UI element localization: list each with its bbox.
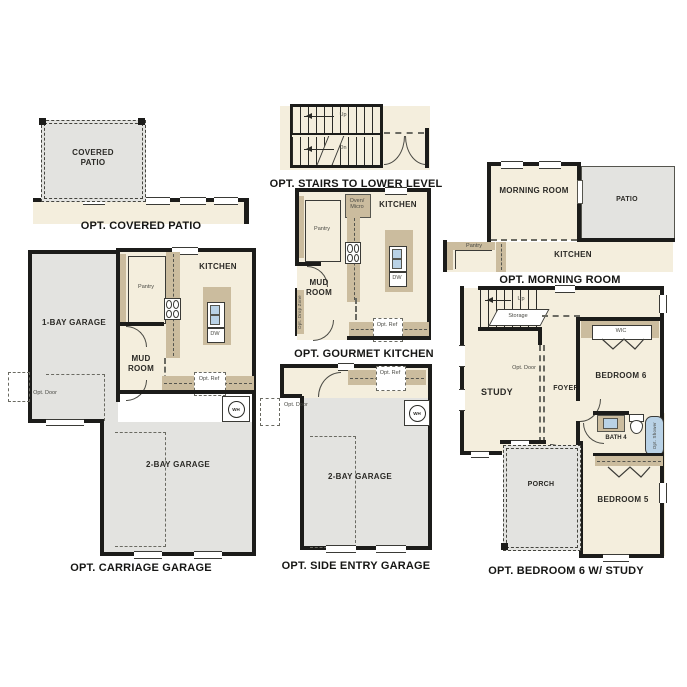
wall: [428, 364, 432, 550]
sink-basin: [210, 315, 220, 325]
bathtub-icon: Opt. Shower: [645, 416, 664, 456]
closet-double-door-icon: [601, 339, 645, 350]
wall: [118, 390, 256, 394]
garage-door-opening: [134, 551, 162, 559]
room-label-bedroom6: BEDROOM 6: [583, 371, 659, 381]
stair-flight-up: [292, 106, 380, 133]
room-label-kitchen: KITCHEN: [531, 250, 615, 260]
caption-carriage-garage: OPT. CARRIAGE GARAGE: [22, 562, 260, 574]
sink-icon: [389, 246, 407, 272]
room-label-kitchen: KITCHEN: [182, 262, 254, 272]
window: [603, 554, 629, 562]
patio-post: [138, 118, 145, 125]
opt-ref-label: Opt. Ref: [194, 376, 224, 382]
wall: [280, 364, 430, 368]
cooktop-icon: [164, 298, 181, 320]
dashed-opening: [384, 132, 424, 134]
room-label-storage: Storage: [499, 313, 537, 319]
down-arrow-icon: [304, 149, 334, 150]
pantry-shelf: [447, 242, 453, 270]
garage-door-opening: [46, 419, 84, 426]
opt-door-swing-zone: [46, 374, 105, 421]
sink-basin: [603, 418, 618, 429]
window: [471, 451, 489, 458]
opt-door-label: Opt. Door: [284, 402, 310, 408]
wall: [100, 419, 104, 556]
room-label-bedroom5: BEDROOM 5: [585, 495, 661, 505]
garage-bay-dashed: [115, 432, 166, 547]
closet-shelf: [595, 456, 663, 466]
caption-gourmet-kitchen: OPT. GOURMET KITCHEN: [293, 348, 435, 360]
garage-bay-dashed: [310, 436, 356, 548]
window: [539, 161, 561, 169]
room-label-kitchen: KITCHEN: [369, 200, 427, 210]
caption-bedroom6-study: OPT. BEDROOM 6 W/ STUDY: [455, 565, 677, 577]
water-heater-icon: WH: [409, 405, 426, 422]
wall: [28, 250, 120, 254]
wall: [300, 396, 304, 548]
wall: [295, 288, 297, 336]
dishwasher-label: DW: [389, 275, 405, 281]
wall: [347, 336, 431, 340]
plan-gourmet-kitchen: Oven/ Micro KITCHEN Pantry DW MUD ROOM O…: [293, 186, 435, 364]
plan-carriage-garage: Opt. Door 1-BAY GARAGE Pantry KITCHEN DW…: [22, 246, 260, 576]
opt-ref-label: Opt. Ref: [376, 370, 404, 376]
plan-bedroom6-study: Up Storage Opt. Door STUDY FOYER WIC BED…: [455, 283, 677, 579]
window: [180, 197, 206, 205]
room-label-wic: WIC: [592, 328, 650, 334]
opt-door-dashed: [543, 345, 545, 443]
opt-door-label: Opt. Door: [511, 365, 537, 371]
room-label-foyer: FOYER: [543, 385, 589, 393]
wall: [280, 394, 302, 398]
window: [555, 285, 575, 293]
wall: [292, 165, 383, 168]
floorplan-options-sheet: COVERED PATIO OPT. COVERED PATIO Up Dn O…: [0, 0, 687, 687]
stair-rail: [292, 133, 380, 135]
plan-stairs-lower-level: Up Dn OPT. STAIRS TO LOWER LEVEL: [278, 102, 434, 194]
oven-micro-label: Oven/ Micro: [345, 198, 369, 211]
wall: [252, 248, 256, 554]
garage-door-opening: [194, 551, 222, 559]
window: [214, 197, 238, 205]
wall: [380, 104, 383, 168]
plan-side-entry-garage: Opt. Ref Opt. Door WH 2-BAY GARAGE OPT. …: [276, 360, 436, 578]
caption-side-entry-garage: OPT. SIDE ENTRY GARAGE: [276, 560, 436, 572]
window: [501, 161, 523, 169]
window: [146, 197, 170, 205]
caption-covered-patio: OPT. COVERED PATIO: [28, 220, 254, 232]
room-label-mud-room: MUD ROOM: [118, 354, 164, 373]
water-heater-box: WH: [404, 400, 430, 426]
pantry-shelf: [299, 196, 304, 258]
stairs-dn-label: Dn: [336, 145, 350, 151]
wall: [538, 327, 542, 345]
opt-shower-label: Opt. Shower: [652, 422, 657, 449]
wall: [487, 162, 491, 242]
wall: [427, 188, 431, 340]
wall: [290, 104, 292, 168]
wall: [292, 104, 383, 107]
up-arrow-icon: [304, 116, 334, 117]
sink-icon: [207, 302, 225, 328]
stairs-up-label: Up: [336, 112, 350, 118]
stairs-up-label: Up: [513, 296, 529, 302]
cooktop-icon: [345, 242, 361, 264]
wall: [280, 364, 284, 396]
garage-door-opening: [326, 545, 356, 553]
opt-drop-zone-label: Opt. Drop Zone: [297, 291, 302, 333]
room-label-bath4: BATH 4: [601, 435, 631, 442]
room-label-patio: PATIO: [581, 196, 673, 204]
wall: [579, 238, 675, 242]
wall: [478, 327, 540, 331]
room-label-pantry: Pantry: [128, 284, 164, 290]
sink-basin: [210, 305, 220, 315]
garage-door-opening: [376, 545, 406, 553]
room-label-covered-patio: COVERED PATIO: [66, 148, 120, 167]
window: [459, 345, 465, 367]
window: [659, 295, 667, 313]
water-heater-icon: WH: [228, 401, 245, 418]
room-label-porch: PORCH: [507, 481, 575, 489]
room-label-2bay-garage: 2-BAY GARAGE: [138, 460, 218, 470]
opt-door-zone: [8, 372, 30, 402]
room-label-2bay-garage: 2-BAY GARAGE: [320, 472, 400, 482]
room-label-study: STUDY: [465, 387, 529, 398]
opt-door-zone: [260, 398, 280, 426]
wall: [425, 128, 429, 168]
plan-morning-room: MORNING ROOM PATIO Pantry KITCHEN OPT. M…: [443, 158, 677, 284]
wall: [116, 350, 120, 402]
patio-post: [39, 118, 46, 125]
dishwasher-label: DW: [207, 331, 223, 337]
drop-zone-shelf: [120, 254, 126, 324]
sink-basin: [392, 249, 402, 259]
opt-door-dashed: [539, 345, 541, 443]
counter: [496, 242, 506, 272]
pantry-outline: [455, 250, 492, 269]
porch-area: [503, 445, 581, 551]
wall: [100, 552, 256, 556]
dashed-opening: [491, 239, 577, 241]
wall: [116, 322, 164, 326]
up-arrow-icon: [485, 300, 511, 301]
room-label-morning: MORNING ROOM: [490, 186, 578, 196]
room-label-pantry: Pantry: [305, 226, 339, 232]
sink-basin: [392, 259, 402, 269]
plan-covered-patio: COVERED PATIO OPT. COVERED PATIO: [28, 112, 254, 238]
wall: [576, 317, 580, 401]
porch-post: [501, 543, 508, 550]
room-label-pantry: Pantry: [457, 243, 491, 249]
morning-room-area: [490, 164, 578, 240]
opt-ref-label: Opt. Ref: [373, 322, 401, 328]
wall: [460, 286, 464, 455]
wall: [295, 188, 431, 192]
window: [385, 187, 407, 195]
room-label-1bay-garage: 1-BAY GARAGE: [34, 318, 114, 328]
dashed-opening: [542, 315, 580, 317]
closet-double-door-icon: [607, 467, 651, 478]
water-heater-box: WH: [222, 396, 250, 422]
